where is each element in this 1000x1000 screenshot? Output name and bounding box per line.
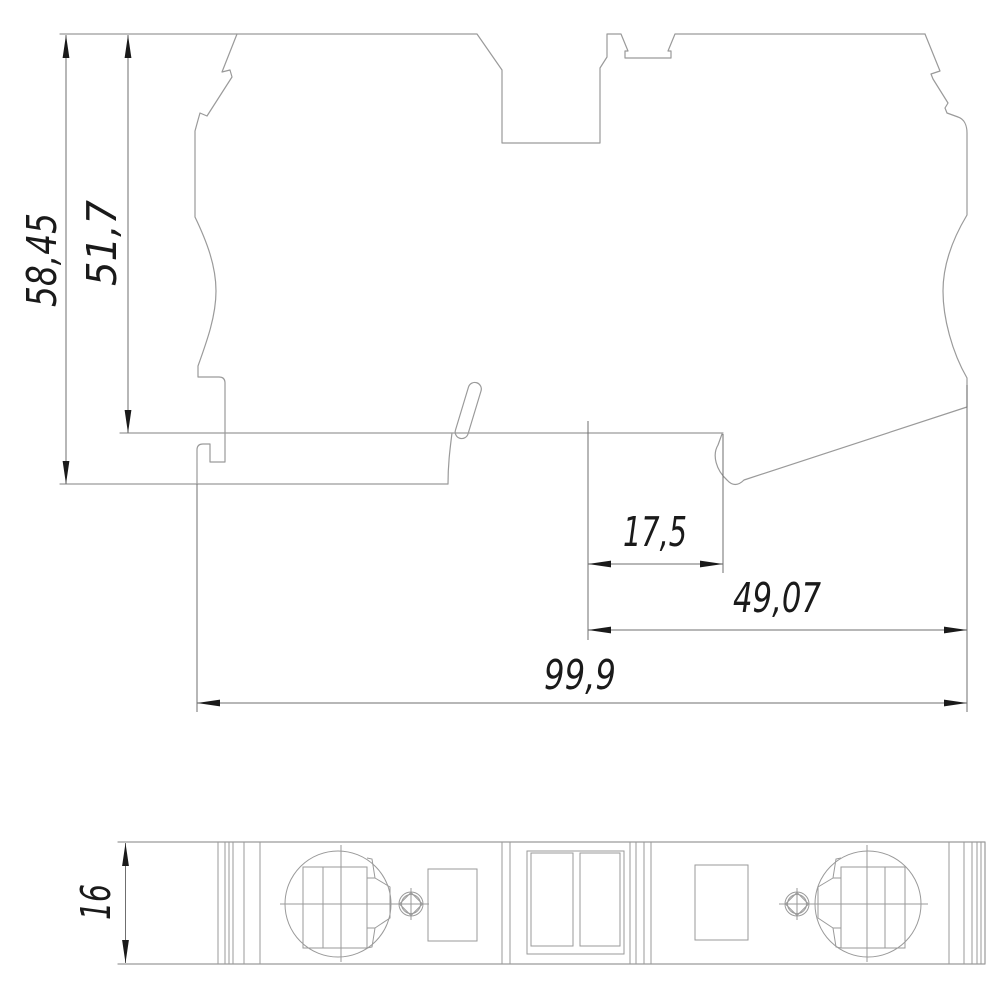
arrow-right-icon bbox=[944, 700, 967, 707]
dimension-upper-height: 51,7 bbox=[78, 35, 131, 433]
dimension-total-length-label: 99,9 bbox=[544, 651, 616, 699]
left-clamp-body bbox=[428, 869, 477, 941]
left-clamp-yoke bbox=[367, 858, 390, 948]
left-clamp-box bbox=[303, 867, 367, 948]
dimension-right-span: 49,07 bbox=[588, 574, 967, 633]
side-view-bottom-right-slant bbox=[715, 407, 967, 485]
arrow-right-icon bbox=[700, 561, 723, 568]
arrow-up-icon bbox=[125, 35, 132, 58]
right-clamp-yoke bbox=[818, 858, 841, 948]
dimension-depth-label: 16 bbox=[72, 884, 120, 920]
right-screw-diamond bbox=[779, 888, 815, 920]
arrow-down-icon bbox=[125, 410, 132, 433]
right-clamp bbox=[695, 845, 928, 962]
side-view-left-jaw bbox=[448, 433, 452, 484]
marker-window bbox=[527, 851, 624, 954]
release-lever-pin bbox=[455, 382, 481, 438]
dimension-total-height-label: 58,45 bbox=[18, 213, 66, 307]
arrow-right-icon bbox=[944, 627, 967, 634]
center-groove-lines bbox=[502, 842, 651, 964]
side-view-right-edge bbox=[925, 34, 967, 407]
arrow-up-icon bbox=[63, 35, 70, 58]
arrow-left-icon bbox=[197, 700, 220, 707]
right-ridge-lines bbox=[949, 842, 981, 964]
drawing-canvas: 58,45 51,7 17,5 49,07 99,9 bbox=[0, 0, 1000, 1000]
side-view bbox=[60, 34, 967, 485]
right-clamp-body bbox=[695, 865, 748, 940]
dimension-rail-center-offset-label: 17,5 bbox=[623, 508, 687, 556]
arrow-down-icon bbox=[122, 940, 129, 963]
side-view-top-edge bbox=[60, 34, 925, 143]
dimension-rail-center-offset: 17,5 bbox=[588, 508, 723, 567]
arrow-down-icon bbox=[63, 461, 70, 484]
dimension-total-height: 58,45 bbox=[18, 35, 69, 484]
dimension-drawing: 58,45 51,7 17,5 49,07 99,9 bbox=[0, 0, 1000, 1000]
arrow-up-icon bbox=[122, 843, 129, 866]
arrow-left-icon bbox=[588, 561, 611, 568]
dimension-upper-height-label: 51,7 bbox=[78, 200, 126, 286]
arrow-left-icon bbox=[588, 627, 611, 634]
left-ridge-lines bbox=[218, 842, 260, 964]
left-clamp bbox=[280, 845, 477, 962]
left-screw-diamond bbox=[393, 888, 429, 920]
left-wire-crosshair bbox=[280, 845, 398, 962]
dimensions: 58,45 51,7 17,5 49,07 99,9 bbox=[18, 35, 967, 963]
dimension-right-span-label: 49,07 bbox=[733, 574, 821, 622]
dimension-total-length: 99,9 bbox=[197, 651, 967, 706]
side-view-left-edge bbox=[195, 34, 237, 484]
dimension-depth: 16 bbox=[72, 843, 129, 963]
right-clamp-box bbox=[841, 867, 905, 948]
bottom-view bbox=[118, 842, 985, 964]
right-wire-crosshair bbox=[810, 845, 928, 962]
